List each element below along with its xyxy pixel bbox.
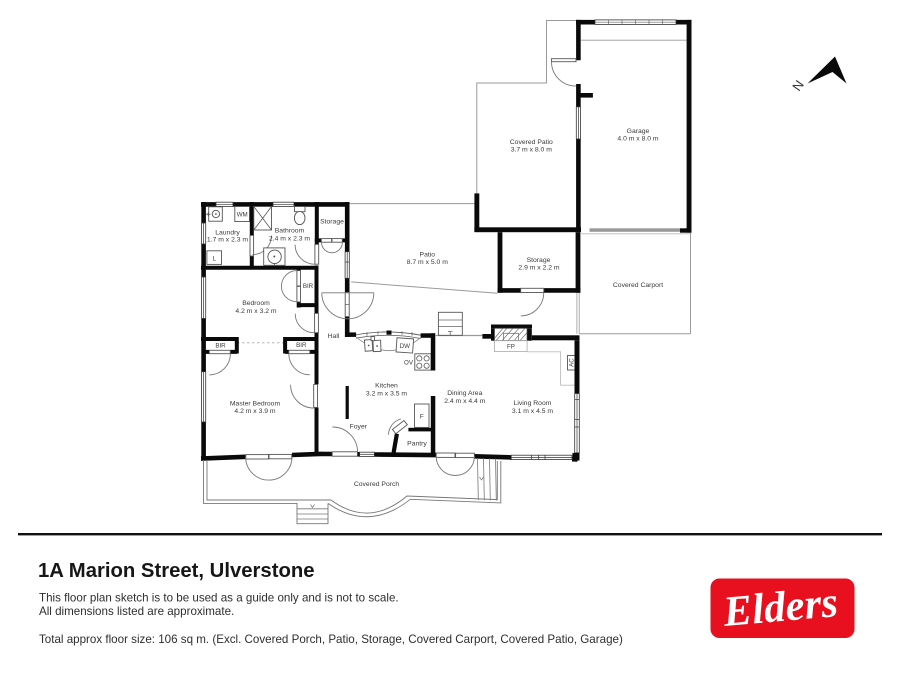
- svg-text:4.2 m x 3.9 m: 4.2 m x 3.9 m: [234, 408, 276, 415]
- svg-text:FP: FP: [507, 343, 515, 350]
- svg-text:Storage: Storage: [320, 219, 344, 226]
- svg-text:Foyer: Foyer: [350, 424, 368, 431]
- svg-text:Elders: Elders: [720, 579, 839, 636]
- svg-text:Covered Porch: Covered Porch: [354, 481, 400, 488]
- svg-text:1.7 m x 2.3 m: 1.7 m x 2.3 m: [207, 236, 249, 243]
- svg-text:All dimensions listed are appr: All dimensions listed are approximate.: [39, 605, 234, 618]
- svg-text:Hall: Hall: [328, 333, 340, 340]
- svg-text:BIR: BIR: [215, 342, 226, 349]
- svg-text:BIR: BIR: [296, 342, 307, 349]
- svg-text:Dining Area: Dining Area: [447, 390, 482, 397]
- svg-text:3.2 m x 3.5 m: 3.2 m x 3.5 m: [366, 390, 408, 397]
- svg-text:3.7 m x 8.0 m: 3.7 m x 8.0 m: [511, 147, 553, 154]
- svg-text:8.7 m x 5.0 m: 8.7 m x 5.0 m: [407, 259, 449, 266]
- svg-text:Bathroom: Bathroom: [275, 228, 305, 235]
- svg-text:2.4 m x 2.3 m: 2.4 m x 2.3 m: [269, 235, 311, 242]
- svg-text:4.0 m x 8.0 m: 4.0 m x 8.0 m: [617, 135, 659, 142]
- svg-text:This floor plan sketch is to b: This floor plan sketch is to be used as …: [39, 592, 399, 605]
- svg-text:DW: DW: [400, 343, 410, 350]
- svg-text:Storage: Storage: [527, 257, 551, 264]
- svg-text:2.9 m x 2.2 m: 2.9 m x 2.2 m: [518, 264, 560, 271]
- svg-text:1A Marion Street, Ulverstone: 1A Marion Street, Ulverstone: [38, 560, 315, 582]
- svg-text:3.1 m x 4.5 m: 3.1 m x 4.5 m: [512, 408, 554, 415]
- svg-text:Garage: Garage: [627, 128, 650, 135]
- svg-text:F: F: [420, 414, 424, 421]
- svg-text:2.4 m x 4.4 m: 2.4 m x 4.4 m: [444, 398, 486, 405]
- svg-text:Covered Patio: Covered Patio: [510, 139, 553, 146]
- svg-text:N: N: [789, 77, 807, 93]
- svg-text:4.2 m x 3.2 m: 4.2 m x 3.2 m: [235, 308, 277, 315]
- svg-text:Kitchen: Kitchen: [375, 383, 398, 390]
- svg-text:Master Bedroom: Master Bedroom: [230, 400, 281, 407]
- svg-text:L: L: [212, 255, 216, 262]
- svg-text:BIR: BIR: [303, 283, 314, 290]
- svg-text:WM: WM: [237, 212, 248, 219]
- svg-text:Living Room: Living Room: [514, 400, 552, 407]
- svg-text:Patio: Patio: [420, 251, 436, 258]
- svg-text:OV: OV: [404, 360, 414, 367]
- svg-text:Covered Carport: Covered Carport: [613, 282, 663, 289]
- svg-text:Pantry: Pantry: [407, 441, 427, 448]
- svg-text:Total approx floor size: 106 s: Total approx floor size: 106 sq m. (Excl…: [39, 633, 623, 646]
- svg-text:Bedroom: Bedroom: [242, 300, 270, 307]
